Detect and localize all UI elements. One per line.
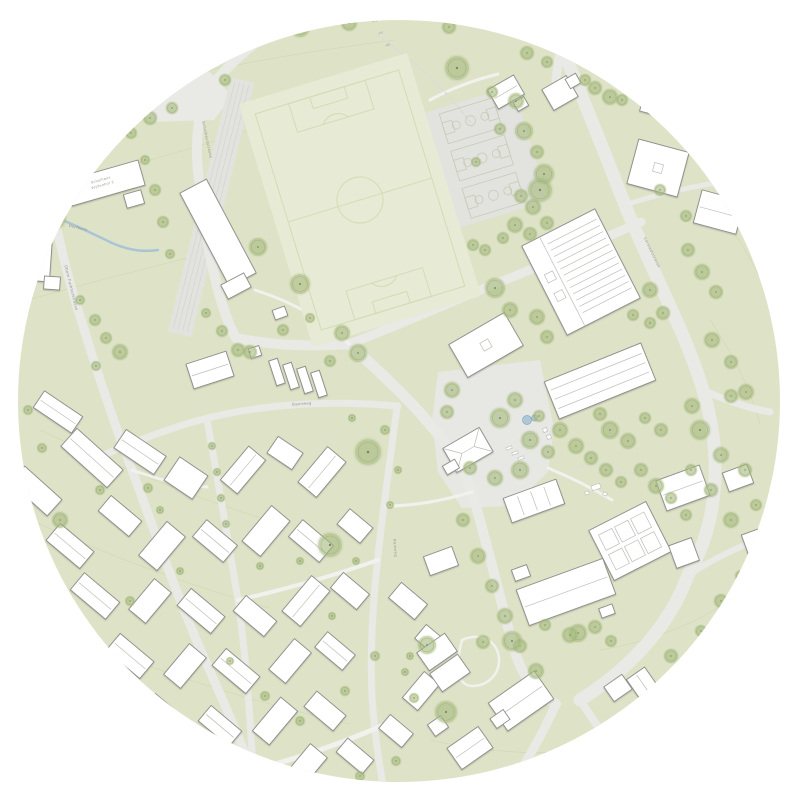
tree-trunk-dot [594, 626, 595, 627]
tree-trunk-dot [649, 322, 650, 323]
tree-trunk-dot [105, 337, 106, 338]
tree [493, 122, 507, 136]
tree [587, 80, 603, 96]
fountain-basin [523, 416, 532, 425]
tree-halo [624, 724, 638, 738]
tree-trunk-dot [649, 79, 650, 80]
tree [683, 397, 701, 415]
tree-trunk-dot [357, 352, 359, 354]
map-clip-group: GramattDorfbachSchulhausWydenhof 3Schulh… [0, 0, 798, 800]
tree-trunk-dot [740, 575, 741, 576]
tree [22, 404, 34, 416]
tree [462, 460, 478, 476]
tree-canopy [39, 554, 51, 566]
tree-trunk-dot [216, 471, 217, 472]
tree [713, 593, 729, 609]
tree [749, 498, 763, 512]
tree [417, 635, 438, 656]
tree [607, 29, 621, 43]
tree-trunk-dot [605, 469, 606, 470]
tree-trunk-dot [627, 440, 629, 442]
tree [679, 508, 693, 522]
tree [314, 785, 326, 797]
building-footprint [27, 141, 53, 162]
tree [90, 360, 102, 372]
tree-ring [221, 787, 230, 796]
tree-ring [105, 695, 116, 706]
tree [592, 406, 608, 422]
tree [712, 446, 730, 464]
tree-halo [638, 693, 654, 709]
tree [326, 10, 342, 26]
tree-trunk-dot [299, 283, 301, 285]
tree [614, 475, 628, 489]
tree [506, 391, 524, 409]
tree-canopy [625, 725, 637, 737]
building-footprint [23, 234, 52, 282]
tree-trunk-dot [691, 405, 693, 407]
tree [514, 121, 535, 142]
tree [333, 324, 351, 342]
tree-trunk-dot [344, 690, 345, 691]
tree [694, 624, 708, 638]
tree-trunk-dot [404, 671, 405, 672]
tree [723, 354, 739, 370]
tree-trunk-dot [679, 117, 680, 118]
tree-trunk-dot [147, 487, 148, 488]
tree-trunk-dot [27, 409, 28, 410]
tree-trunk-dot [584, 79, 585, 80]
tree [708, 284, 724, 300]
tree [327, 611, 336, 620]
tree-halo [132, 733, 148, 749]
tree-trunk-dot [367, 451, 370, 454]
tree [528, 308, 546, 326]
tree-trunk-dot [523, 130, 525, 132]
tree [242, 344, 258, 360]
tree [469, 547, 487, 565]
tree-ring [316, 787, 324, 795]
tree [716, 162, 732, 178]
tree-trunk-dot [221, 330, 222, 331]
tree-trunk-dot [456, 67, 458, 69]
tree-trunk-dot [575, 445, 577, 447]
tree-trunk-dot [529, 233, 530, 234]
tree [506, 216, 524, 234]
tree [655, 305, 671, 321]
tree-trunk-dot [515, 100, 517, 102]
tree-trunk-dot [621, 99, 622, 100]
tree-trunk-dot [149, 117, 150, 118]
tree [723, 388, 739, 404]
building [236, 757, 276, 795]
tree [304, 312, 316, 324]
tree [470, 156, 482, 168]
tree-canopy [164, 775, 176, 787]
tree-trunk-dot [259, 565, 260, 566]
tree-halo [623, 49, 637, 63]
tree-trunk-dot [509, 309, 511, 311]
tree [313, 6, 327, 20]
tree [641, 281, 659, 299]
tree-trunk-dot [662, 312, 663, 313]
tree-canopy [434, 6, 450, 22]
tree [633, 462, 649, 478]
tree [164, 248, 176, 260]
tree [36, 442, 48, 454]
tree-trunk-dot [74, 679, 75, 680]
tree-ring [737, 572, 746, 581]
tree-canopy [133, 734, 147, 748]
tree [216, 493, 225, 502]
tree-trunk-dot [569, 634, 571, 636]
tree-canopy [643, 73, 657, 87]
tree-trunk-dot [730, 519, 732, 521]
tree-trunk-dot [462, 519, 463, 520]
tree [643, 316, 657, 330]
tree-trunk-dot [139, 740, 140, 741]
tree [647, 477, 665, 495]
tree [539, 329, 555, 345]
tree-ring [166, 777, 175, 786]
tree-trunk-dot [539, 189, 541, 191]
tree-trunk-dot [445, 711, 447, 713]
tree-canopy [758, 538, 772, 552]
tree-ring [645, 75, 656, 86]
tree [538, 618, 552, 632]
tree-trunk-dot [755, 504, 756, 505]
tree-trunk-dot [723, 169, 724, 170]
tree-halo [111, 121, 123, 133]
tree [218, 73, 232, 87]
building-footprint [733, 187, 747, 200]
tree-ring [135, 736, 146, 747]
tree-ring [47, 210, 64, 227]
tree [475, 634, 491, 650]
tree [340, 14, 358, 32]
tree [672, 110, 688, 126]
tree-trunk-dot [341, 332, 343, 334]
tree-trunk-dot [282, 329, 283, 330]
tree-ring [610, 32, 619, 41]
tree-ring [719, 165, 730, 176]
tree [339, 685, 351, 697]
tree-trunk-dot [687, 249, 688, 250]
tree [354, 770, 366, 782]
tree-trunk-dot [613, 35, 614, 36]
tree-trunk-dot [499, 128, 500, 129]
tree [441, 19, 457, 35]
tree-trunk-dot [670, 497, 671, 498]
tree-ring [626, 52, 635, 61]
tree-trunk-dot [764, 544, 765, 545]
tree-trunk-dot [103, 140, 104, 141]
tree [289, 16, 312, 39]
tree [520, 430, 541, 451]
tree [142, 482, 154, 494]
tree [532, 409, 546, 423]
tree [619, 432, 637, 450]
tree-canopy [608, 30, 620, 42]
tree [529, 144, 545, 160]
tree [439, 404, 455, 420]
tree [385, 500, 394, 509]
tree [501, 301, 519, 319]
tree-ring [627, 727, 636, 736]
tree [353, 437, 383, 467]
tree [455, 512, 471, 528]
tree-trunk-dot [477, 555, 479, 557]
tree-ring [641, 696, 652, 707]
tree-trunk-dot [384, 429, 385, 430]
tree-trunk-dot [519, 469, 521, 471]
tree [42, 205, 67, 230]
tree-trunk-dot [448, 26, 449, 27]
tree [583, 450, 599, 466]
tree-trunk-dot [59, 519, 61, 521]
tree-trunk-dot [546, 61, 547, 62]
tree-trunk-dot [475, 161, 476, 162]
tree [615, 93, 629, 107]
tree-trunk-dot [720, 454, 722, 456]
tree-trunk-dot [409, 655, 410, 656]
tree [604, 634, 618, 648]
tree [478, 243, 492, 257]
tree-ring [436, 8, 448, 20]
tree-trunk-dot [599, 413, 600, 414]
tree-trunk-dot [116, 126, 117, 127]
tree-ring [329, 13, 340, 24]
tree-halo [163, 774, 177, 788]
tree [510, 460, 531, 481]
tree-halo [218, 784, 232, 798]
tree-trunk-dot [730, 361, 731, 362]
tree [111, 343, 129, 361]
tree-trunk-dot [546, 222, 547, 223]
building [183, 750, 226, 791]
tree [679, 209, 693, 223]
tree-trunk-dot [451, 389, 453, 391]
tree [316, 531, 344, 559]
tree [527, 662, 545, 680]
tree-trunk-dot [536, 316, 538, 318]
tree-trunk-dot [609, 429, 611, 431]
tree-trunk-dot [660, 429, 661, 430]
tree-trunk-dot [426, 644, 428, 646]
tree-trunk-dot [299, 26, 301, 28]
tree [638, 693, 654, 709]
tree-trunk-dot [502, 237, 503, 238]
tree [255, 561, 264, 570]
tree [400, 667, 409, 676]
tree-ring [694, 144, 706, 156]
tree-trunk-dot [499, 417, 501, 419]
tree-trunk-dot [446, 411, 447, 412]
tree-trunk-dot [590, 457, 591, 458]
tree-halo [603, 753, 619, 769]
tree-trunk-dot [649, 289, 651, 291]
tree-trunk-dot [629, 55, 630, 56]
tree-canopy [327, 11, 341, 25]
tree [259, 690, 271, 702]
tree [567, 437, 585, 455]
tree [148, 183, 162, 197]
tree [524, 198, 542, 216]
tree-trunk-dot [413, 697, 414, 698]
tree-canopy [103, 693, 117, 707]
tree [693, 263, 711, 281]
tree-canopy [692, 142, 708, 158]
tree [561, 626, 579, 644]
tree-trunk-dot [389, 504, 390, 505]
tree [638, 411, 652, 425]
tree [111, 121, 123, 133]
tree [522, 226, 538, 242]
tree [539, 215, 555, 231]
tree [155, 505, 164, 514]
tree [248, 237, 269, 258]
tree-canopy [717, 163, 731, 177]
tree-trunk-dot [224, 790, 225, 791]
tree-trunk-dot [257, 246, 259, 248]
tree-trunk-dot [41, 447, 42, 448]
tree [165, 101, 179, 115]
tree [519, 45, 535, 61]
tree [379, 424, 391, 436]
tree-trunk-dot [472, 244, 473, 245]
tree-trunk-dot [469, 467, 470, 468]
tree-trunk-dot [299, 560, 300, 561]
tree-trunk-dot [395, 760, 396, 761]
tree-canopy [624, 50, 636, 62]
tree [722, 511, 740, 529]
tree [623, 49, 637, 63]
tree [351, 556, 360, 565]
tree-canopy [112, 122, 122, 132]
tree-ring [760, 540, 771, 551]
tree-trunk-dot [162, 221, 163, 222]
tree-trunk-dot [441, 13, 443, 15]
tree-canopy [99, 136, 109, 146]
tree-trunk-dot [264, 695, 265, 696]
tree-canopy [639, 694, 653, 708]
tree-canopy [341, 15, 357, 31]
tree-trunk-dot [730, 395, 731, 396]
tree-trunk-dot [109, 699, 110, 700]
tree [132, 733, 148, 749]
tree [757, 537, 773, 553]
tree-trunk-dot [690, 469, 691, 470]
tree-trunk-dot [319, 12, 320, 13]
tree-halo [716, 162, 732, 178]
tree [38, 553, 52, 567]
tree-trunk-dot [544, 624, 545, 625]
tree [484, 578, 500, 594]
building [23, 234, 52, 282]
tree-halo [80, 630, 101, 651]
tree [215, 324, 229, 338]
tree-halo [326, 10, 342, 26]
tree [142, 110, 158, 126]
tree-ring [113, 123, 121, 131]
tree-canopy [69, 674, 81, 686]
tree-trunk-dot [640, 469, 641, 470]
site-plan-stage: GramattDorfbachSchulhausWydenhof 3Schulh… [0, 0, 798, 800]
tree [221, 519, 230, 528]
building [538, 30, 551, 42]
tree-halo [68, 673, 82, 687]
tree [680, 242, 696, 258]
furniture-group [542, 427, 547, 432]
contour-elevation-label: 470 [709, 56, 715, 61]
tree-trunk-dot [529, 439, 531, 441]
tree-canopy [219, 785, 231, 797]
tree-trunk-dot [484, 249, 485, 250]
building-footprint [44, 276, 61, 290]
tree [347, 413, 356, 422]
tree [94, 484, 106, 496]
tree-trunk-dot [685, 215, 686, 216]
tree-trunk-dot [99, 489, 100, 490]
tree [443, 54, 471, 82]
tree [218, 784, 232, 798]
tree [664, 491, 678, 505]
tree-trunk-dot [224, 79, 225, 80]
tree-halo [433, 5, 451, 23]
tree-trunk-dot [54, 217, 56, 219]
tree-trunk-dot [220, 497, 221, 498]
tree-trunk-dot [351, 417, 352, 418]
tree-trunk-dot [514, 224, 516, 226]
tree [663, 648, 679, 664]
tree-trunk-dot [494, 477, 496, 479]
tree-canopy [673, 111, 687, 125]
tree-ring [267, 19, 279, 31]
tree-ring [675, 113, 686, 124]
tree-ring [606, 756, 617, 767]
tree-ring [41, 556, 50, 565]
tree [496, 231, 510, 245]
tree-trunk-dot [272, 24, 274, 26]
tree-trunk-dot [659, 189, 660, 190]
roof-ridge [191, 759, 219, 782]
tree-canopy [290, 17, 310, 37]
tree-trunk-dot [129, 600, 130, 601]
tree-ring [71, 676, 80, 685]
tree-trunk-dot [169, 780, 170, 781]
tree [323, 354, 337, 368]
tree-trunk-dot [299, 720, 300, 721]
tree [348, 343, 369, 364]
tree-trunk-dot [699, 429, 701, 431]
tree [175, 566, 184, 575]
tree-trunk-dot [333, 17, 334, 18]
tree-halo [42, 205, 67, 230]
tree-ring [316, 9, 325, 18]
tree-trunk-dot [309, 317, 310, 318]
road [309, 0, 398, 6]
tree-trunk-dot [229, 660, 230, 661]
tree-trunk-dot [144, 159, 145, 160]
tree [737, 462, 753, 478]
tree [489, 407, 512, 430]
tree [603, 753, 619, 769]
tree-trunk-dot [720, 600, 721, 601]
tree-trunk-dot [511, 640, 513, 642]
tree [433, 699, 458, 724]
tree-canopy [265, 17, 281, 33]
tree [501, 630, 524, 653]
